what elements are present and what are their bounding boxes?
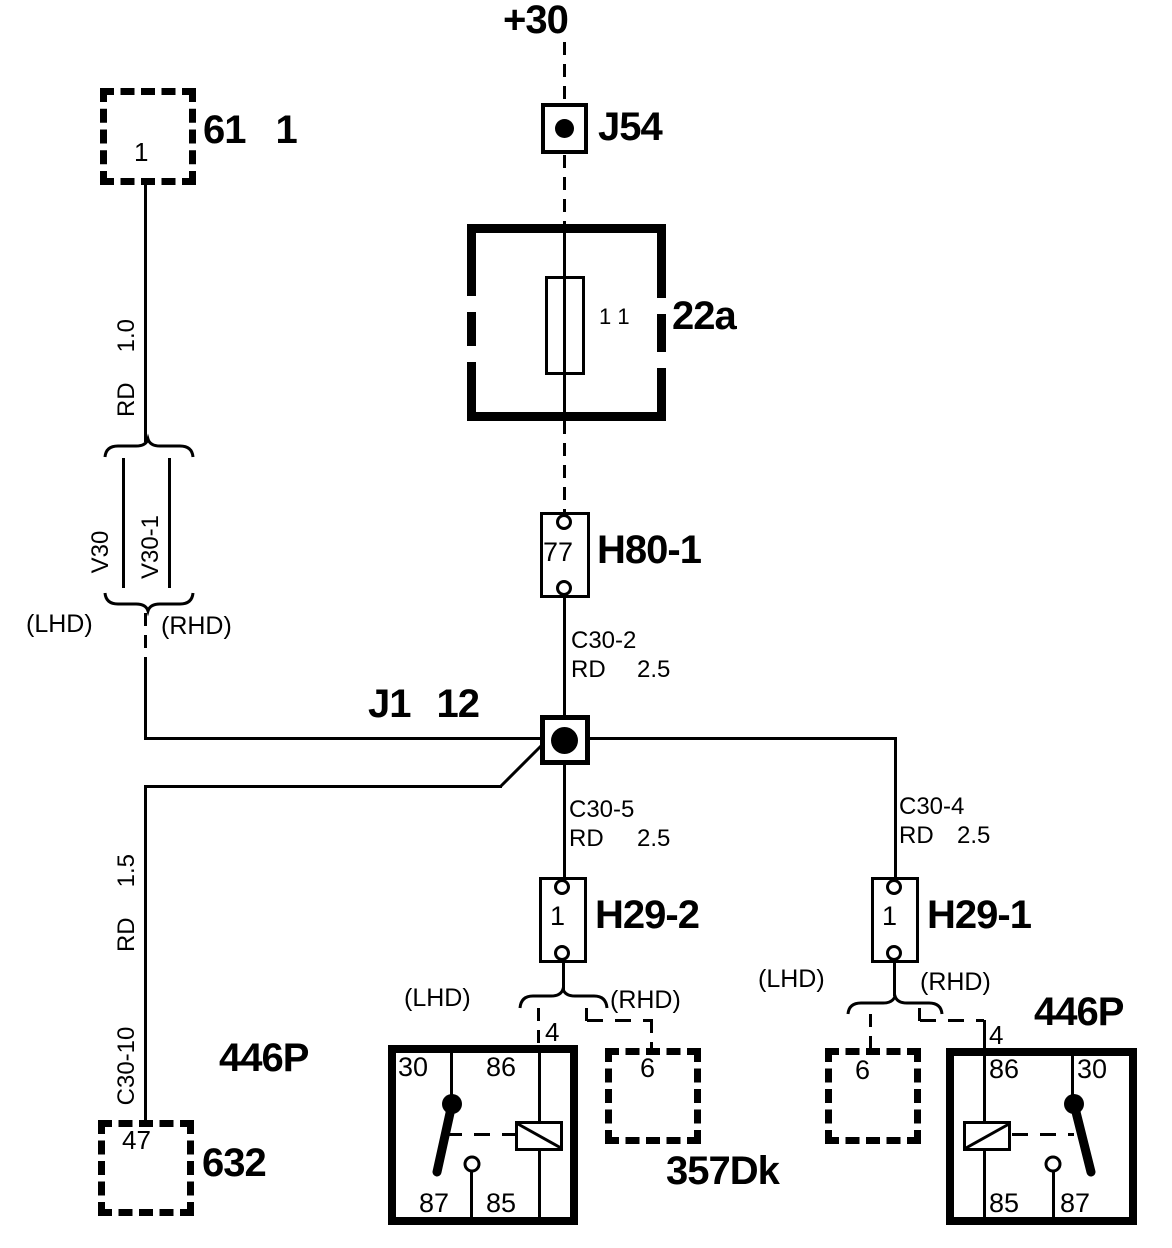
wire-j54-to-fusebox — [563, 155, 566, 225]
wire-c30-4-color: RD — [899, 823, 934, 848]
relay-left-pin30-line — [450, 1045, 453, 1100]
relay-right-link-dashed — [1012, 1133, 1074, 1136]
fusebox-border-gap — [655, 352, 670, 368]
variant-lhd-right: (LHD) — [758, 966, 825, 992]
wire-j1-left-arm — [144, 737, 542, 740]
wire-c30-4-pin: C30-4 — [899, 794, 964, 819]
wire-c30-5-color: RD — [569, 826, 604, 851]
relay-right-pin87-line — [1052, 1171, 1055, 1218]
wire-c30-2-pin: C30-2 — [571, 628, 636, 653]
wire-rhd-to-conn6-mid — [587, 1019, 653, 1022]
wire-j1-to-h29-2 — [563, 765, 566, 879]
relay-left-pin-87: 87 — [419, 1189, 449, 1217]
h80-1-label: H80-1 — [597, 530, 701, 570]
relay-right-coil-line-bottom — [983, 1150, 986, 1218]
connector-61-pin: 1 — [134, 139, 148, 166]
connector-357dk-pin-mid: 6 — [640, 1054, 655, 1082]
wire-rd10-gauge: 1.0 — [115, 319, 139, 352]
connector-61-ref: 1 — [276, 110, 297, 150]
wire-harness-dashed — [144, 613, 147, 658]
wire-lhd-to-left-relay — [537, 1008, 540, 1045]
fusebox-border-gap — [463, 346, 478, 362]
relay-right-pin30-line — [1071, 1048, 1074, 1100]
j1-ref: 12 — [437, 684, 480, 724]
wire-c30-10-text: C30-10 — [115, 1027, 139, 1106]
h29-1-label: H29-1 — [927, 895, 1031, 935]
wire-rhd-to-right-relay — [920, 1019, 984, 1022]
h29-2-pin-bottom — [554, 945, 570, 961]
j1-label-group: J112 — [368, 684, 479, 724]
fusebox-border-gap — [655, 298, 670, 314]
j54-dot — [555, 119, 574, 138]
harness-brace-top — [105, 439, 193, 457]
harness-line-v30 — [122, 458, 125, 588]
wire-lower-left-arm — [144, 785, 502, 788]
relay-right-pin-87: 87 — [1060, 1189, 1090, 1217]
connector-357dk-pin-right: 6 — [855, 1056, 870, 1084]
h29-1-pin-bottom — [886, 945, 902, 961]
relay-left-pin-85: 85 — [486, 1189, 516, 1217]
relay-right-coil — [963, 1121, 1011, 1151]
wire-c30-5-pin: C30-5 — [569, 797, 634, 822]
variant-rhd-harness: (RHD) — [161, 613, 232, 639]
wire-drop-conn6-mid — [650, 1020, 653, 1048]
harness-v30-label: V30 — [89, 531, 113, 574]
h29-2-pin-top — [554, 879, 570, 895]
wire-c30-10-label: C30-10 — [115, 1027, 139, 1106]
fusebox-border-gap — [463, 296, 478, 312]
h80-1-pin-top — [556, 514, 572, 530]
relay-right-pin-86: 86 — [989, 1055, 1019, 1083]
relay-right-446p-label: 446P — [1034, 992, 1123, 1032]
j1-label: J1 — [368, 684, 411, 724]
h80-1-pin-bottom — [556, 580, 572, 596]
wire-h29-1-to-brace — [893, 963, 896, 996]
wire-c30-5-gauge: 2.5 — [637, 826, 670, 851]
wire-harness-to-j1 — [144, 658, 147, 740]
connector-632-pin: 47 — [122, 1127, 151, 1154]
h29-2-label: H29-2 — [595, 895, 699, 935]
variant-rhd-right: (RHD) — [920, 969, 991, 995]
relay-left-pin87-line — [470, 1171, 473, 1218]
harness-line-v30-1 — [168, 458, 171, 588]
relay-left-link-dashed — [446, 1133, 516, 1136]
wire-plus30-to-j54 — [563, 42, 566, 103]
relay-right-feed-pin: 4 — [989, 1022, 1003, 1049]
wire-rd15-gauge: 1.5 — [115, 854, 139, 887]
wire-rd10-color: RD — [115, 382, 139, 417]
connector-357dk-box-right — [825, 1048, 921, 1144]
wire-rd15-color: RD — [115, 917, 139, 952]
h29-1-pin-top — [886, 879, 902, 895]
fuse-pins: 1 1 — [599, 305, 630, 328]
relay-right-coil-line-top — [983, 1048, 986, 1122]
harness-v30-1-label: V30-1 — [139, 515, 163, 579]
relay-left-pin-86: 86 — [486, 1053, 516, 1081]
wire-drop-right-relay — [983, 1020, 986, 1048]
wire-h80-to-j1 — [563, 598, 566, 717]
j54-label: J54 — [598, 107, 662, 147]
variant-rhd-mid: (RHD) — [610, 987, 681, 1013]
j1-dot — [551, 727, 578, 754]
h29-2-variant-brace — [520, 989, 607, 1008]
harness-v30-1-text: V30-1 — [139, 515, 163, 579]
h29-2-pin-number: 1 — [550, 902, 565, 930]
harness-brace-bottom — [105, 593, 193, 611]
connector-61-id: 61 — [203, 110, 246, 150]
relay-left-446p-label: 446P — [219, 1038, 308, 1078]
connector-357dk-label: 357Dk — [666, 1151, 779, 1191]
variant-lhd-mid: (LHD) — [404, 985, 471, 1011]
wire-rd15-label: RD 1.5 — [115, 854, 139, 952]
relay-right-pin-30: 30 — [1077, 1055, 1107, 1083]
variant-lhd-harness: (LHD) — [26, 611, 93, 637]
wire-h29-2-to-brace — [562, 963, 565, 991]
h29-1-pin-number: 1 — [882, 902, 897, 930]
wiring-diagram: 1 611 +30 J54 1 1 22a 77 H80-1 C30-2 RD … — [0, 0, 1172, 1248]
relay-right-pin-85: 85 — [989, 1189, 1019, 1217]
relay-left-coil-line-top — [538, 1045, 541, 1122]
h80-1-pin-number: 77 — [543, 538, 573, 566]
wire-c30-2-color: RD — [571, 657, 606, 682]
relay-left-feed-pin: 4 — [545, 1019, 559, 1046]
connector-61-box — [100, 88, 196, 185]
wire-down-to-h29-1 — [894, 737, 897, 879]
harness-v30-text: V30 — [89, 531, 113, 574]
wire-61-to-harness — [144, 185, 147, 442]
j1-branch-diagonal — [500, 746, 541, 787]
connector-632-label: 632 — [202, 1143, 266, 1183]
wire-rd10-label: RD 1.0 — [115, 319, 139, 417]
wire-c30-4-gauge: 2.5 — [957, 823, 990, 848]
wire-to-632 — [144, 785, 147, 1122]
relay-left-coil — [515, 1121, 563, 1151]
power-feed-label: +30 — [503, 0, 568, 40]
h29-1-variant-brace — [848, 996, 942, 1014]
relay-left-pin-30: 30 — [398, 1053, 428, 1081]
wire-c30-2-gauge: 2.5 — [637, 657, 670, 682]
wire-fusebox-to-h80 — [563, 421, 566, 512]
connector-61-label: 611 — [203, 110, 297, 150]
wire-j1-right-arm — [589, 737, 897, 740]
fusebox-label: 22a — [672, 296, 736, 336]
fuse-symbol — [545, 276, 585, 375]
wire-lhd-to-conn6-right — [869, 1014, 872, 1048]
relay-left-coil-line-bottom — [538, 1150, 541, 1218]
